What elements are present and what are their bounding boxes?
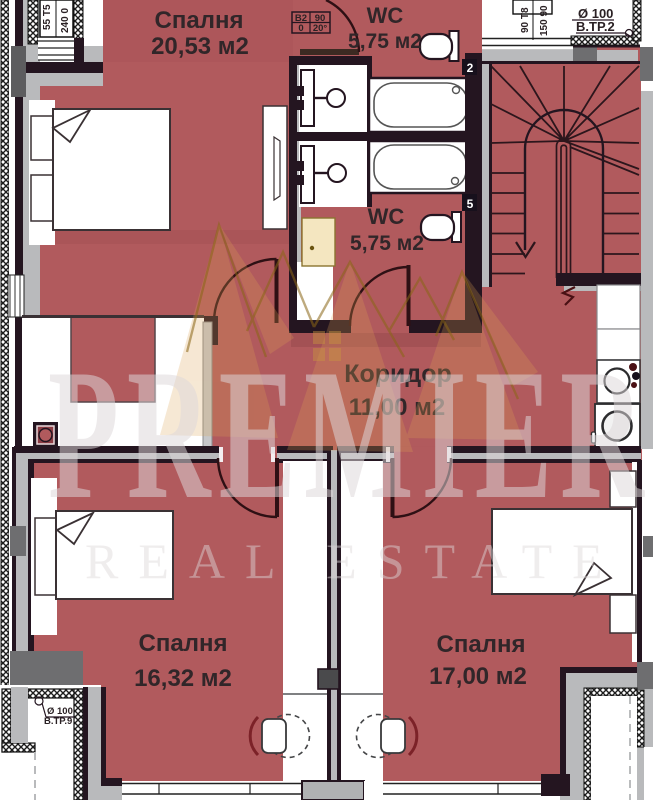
svg-text:5,75 м2: 5,75 м2 [348,30,422,53]
svg-text:16,32 м2: 16,32 м2 [134,665,232,692]
svg-text:Спалня: Спалня [139,630,228,657]
svg-text:REAL ESTATE: REAL ESTATE [85,533,623,589]
svg-text:90 T8: 90 T8 [520,7,531,33]
svg-text:2: 2 [467,61,474,75]
svg-text:WC: WC [368,204,405,229]
svg-text:PREMIER: PREMIER [48,330,652,538]
svg-text:5: 5 [467,197,474,211]
svg-text:Спалня: Спалня [155,7,244,34]
svg-text:55 T5: 55 T5 [42,4,53,30]
svg-text:240 0: 240 0 [60,8,71,33]
svg-text:20°: 20° [313,23,328,34]
svg-text:B.TP.2: B.TP.2 [576,19,615,34]
svg-text:5,75 м2: 5,75 м2 [350,232,424,255]
svg-text:17,00 м2: 17,00 м2 [429,663,527,690]
svg-text:WC: WC [367,3,404,28]
svg-text:20,53 м2: 20,53 м2 [151,33,249,60]
svg-text:150 90: 150 90 [539,5,550,36]
svg-text:0: 0 [298,23,303,34]
svg-text:Спалня: Спалня [437,631,526,658]
svg-text:B.TP.9: B.TP.9 [44,716,72,727]
